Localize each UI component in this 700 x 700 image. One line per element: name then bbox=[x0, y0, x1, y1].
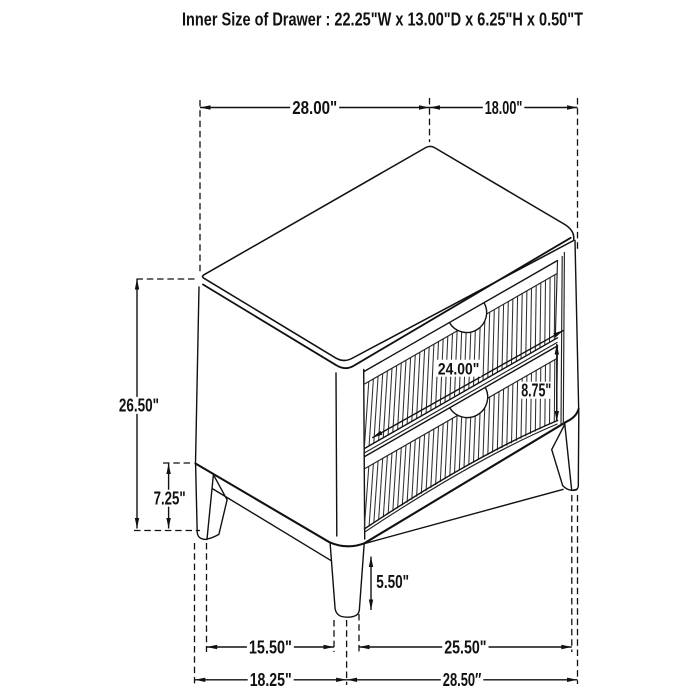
svg-text:5.50": 5.50" bbox=[376, 571, 409, 592]
svg-text:28.50″: 28.50″ bbox=[443, 669, 482, 690]
svg-text:28.00": 28.00" bbox=[292, 97, 337, 118]
svg-text:Inner Size of Drawer : 22.25"W: Inner Size of Drawer : 22.25"W x 13.00"D… bbox=[182, 9, 584, 30]
svg-text:15.50": 15.50" bbox=[249, 636, 292, 657]
svg-text:25.50": 25.50" bbox=[444, 636, 486, 657]
svg-text:26.50": 26.50" bbox=[119, 395, 159, 416]
svg-text:8.75": 8.75" bbox=[521, 380, 551, 401]
svg-text:24.00": 24.00" bbox=[438, 360, 479, 379]
svg-text:18.00": 18.00" bbox=[485, 97, 523, 118]
svg-text:7.25": 7.25" bbox=[154, 488, 186, 509]
svg-text:18.25": 18.25" bbox=[250, 669, 292, 690]
